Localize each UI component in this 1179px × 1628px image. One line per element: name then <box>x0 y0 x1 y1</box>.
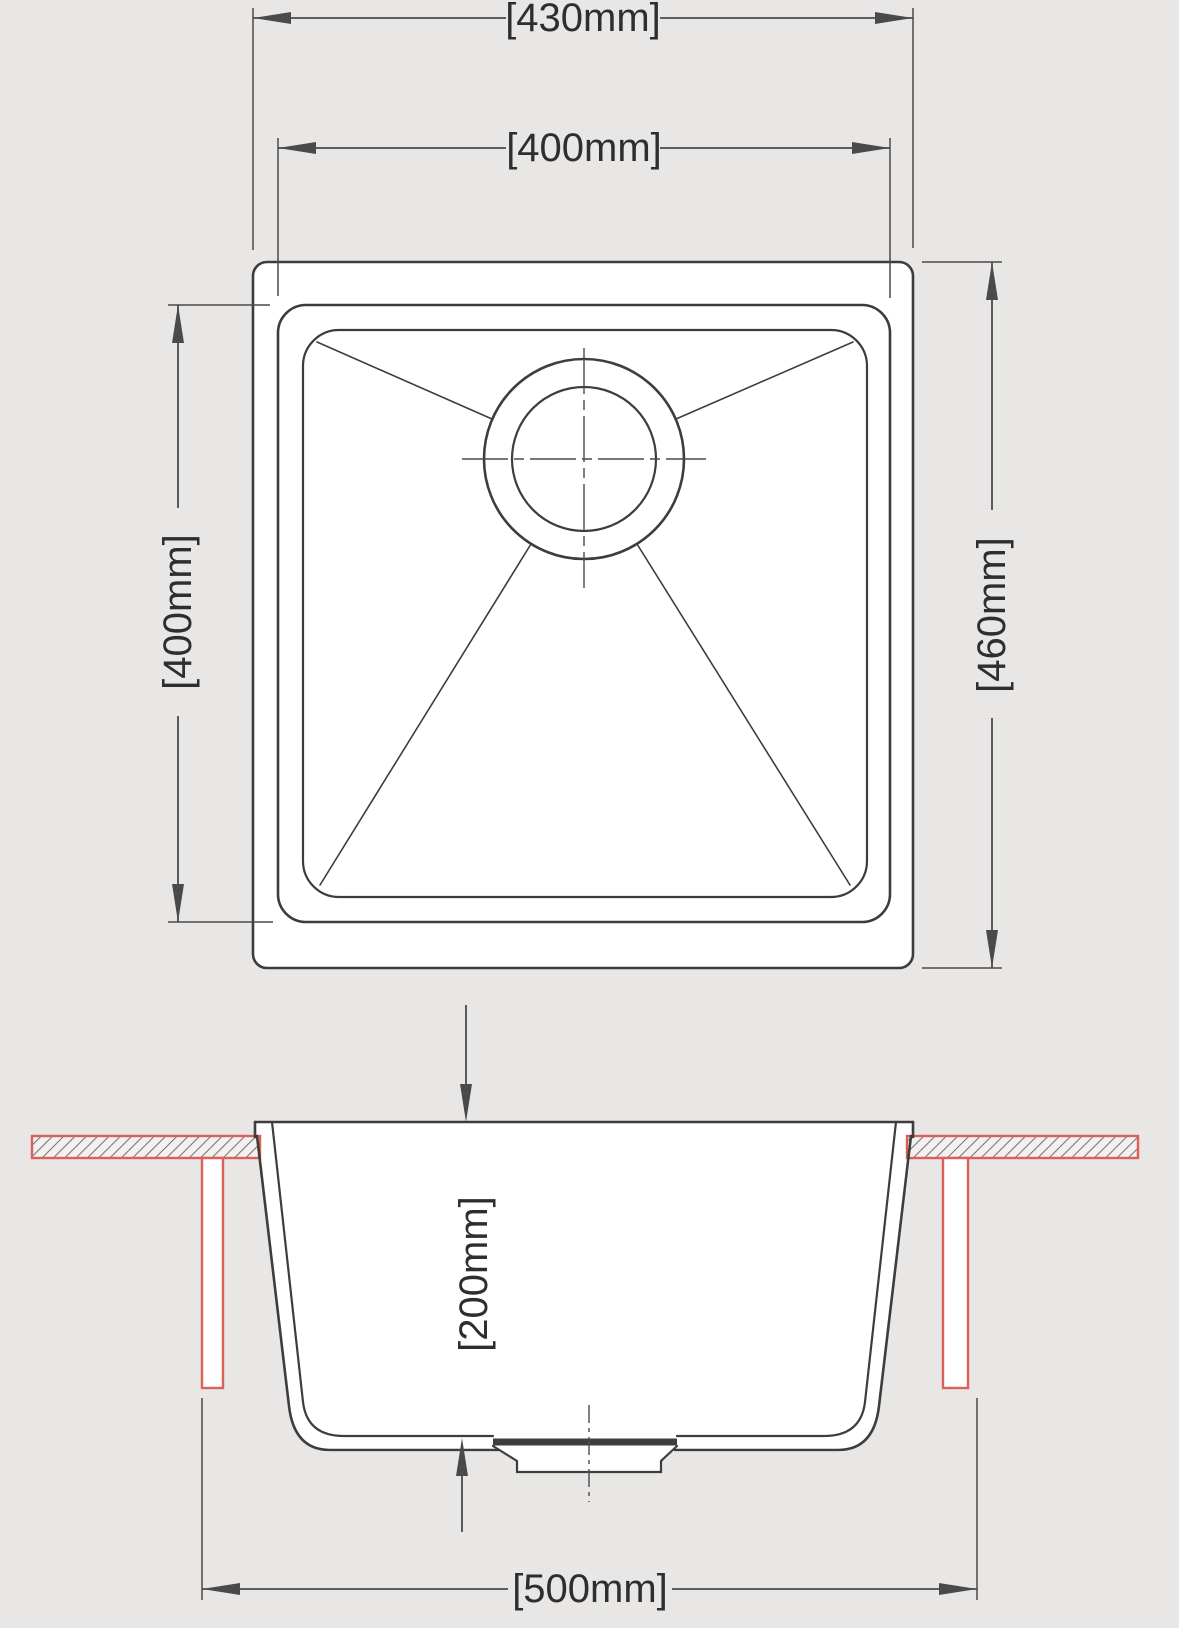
mounting-clip-right <box>943 1158 968 1388</box>
technical-drawing-page: [430mm] [400mm] [400mm] <box>0 0 1179 1628</box>
section-sink-body <box>255 1122 913 1472</box>
dim-label-overall-length: [460mm] <box>970 537 1014 693</box>
dim-label-bowl-width: [400mm] <box>506 126 662 170</box>
plan-view: [430mm] [400mm] [400mm] <box>156 0 1014 968</box>
countertop-left <box>32 1136 260 1158</box>
arrowhead-down <box>460 1084 472 1122</box>
arrowhead-top <box>172 305 184 343</box>
arrowhead-left <box>278 142 316 154</box>
dim-overall-width: [430mm] <box>253 0 913 250</box>
drain-body <box>493 1446 677 1472</box>
dim-label-bowl-depth: [200mm] <box>452 1196 496 1352</box>
drawing-canvas: [430mm] [400mm] [400mm] <box>0 0 1179 1628</box>
section-view: [200mm] [500mm] <box>32 1005 1138 1611</box>
dim-label-overall-width: [430mm] <box>505 0 661 40</box>
arrowhead-right <box>852 142 890 154</box>
arrowhead-right <box>875 12 913 24</box>
arrowhead-top <box>986 262 998 300</box>
dim-overall-length: [460mm] <box>922 262 1014 968</box>
arrowhead-left <box>202 1583 240 1595</box>
mounting-clip-left <box>202 1158 223 1388</box>
arrowhead-bottom <box>172 884 184 922</box>
countertop-right <box>907 1136 1138 1158</box>
arrowhead-bottom <box>986 930 998 968</box>
arrowhead-right <box>939 1583 977 1595</box>
dim-label-base-width: [500mm] <box>512 1567 668 1611</box>
arrowhead-left <box>253 12 291 24</box>
dim-label-bowl-length: [400mm] <box>156 534 200 690</box>
dim-bowl-depth: [200mm] <box>452 1005 496 1532</box>
plan-sink-outline <box>253 262 913 968</box>
